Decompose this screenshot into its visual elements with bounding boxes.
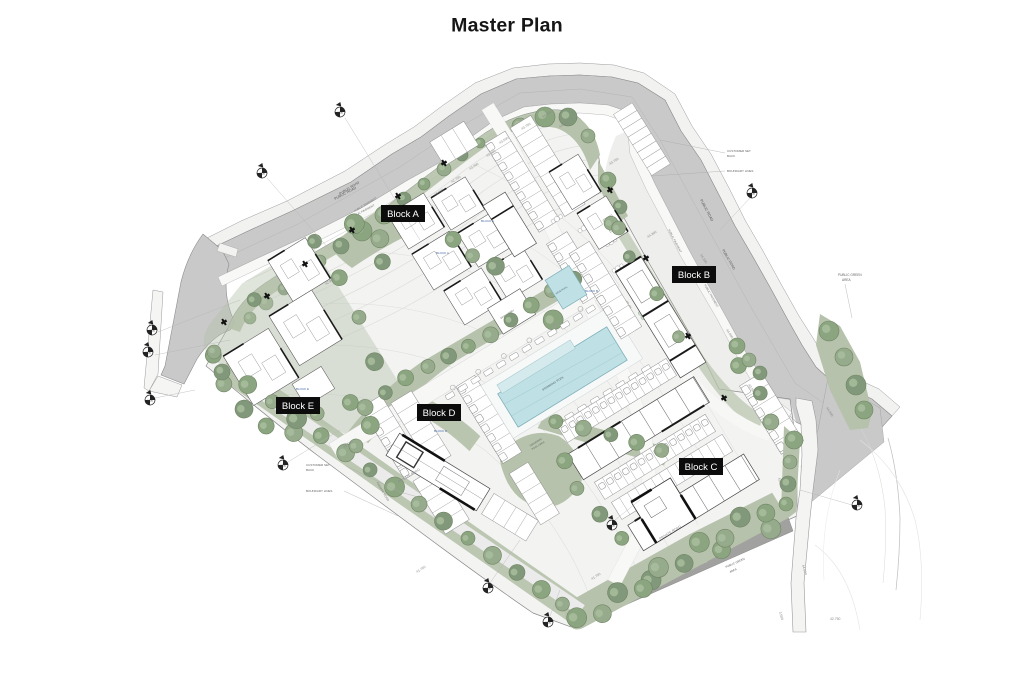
svg-text:A000: A000 bbox=[149, 330, 155, 333]
svg-text:PUBLIC GREEN: PUBLIC GREEN bbox=[838, 273, 862, 277]
svg-text:A000: A000 bbox=[147, 400, 153, 403]
svg-text:BACK: BACK bbox=[727, 154, 735, 158]
svg-text:A000: A000 bbox=[280, 465, 286, 468]
svg-text:A000: A000 bbox=[854, 505, 860, 508]
svg-text:42.750: 42.750 bbox=[830, 617, 840, 621]
svg-text:BLOCK D: BLOCK D bbox=[434, 429, 448, 433]
svg-text:BLOCK A: BLOCK A bbox=[481, 219, 494, 223]
svg-text:A000: A000 bbox=[259, 173, 265, 176]
svg-text:Master Plan: Master Plan bbox=[451, 15, 563, 37]
svg-text:Block C: Block C bbox=[685, 462, 718, 473]
svg-text:A000: A000 bbox=[145, 352, 151, 355]
svg-text:AREA: AREA bbox=[842, 278, 852, 282]
svg-text:A000: A000 bbox=[337, 112, 343, 115]
svg-text:CUSTOMER SET: CUSTOMER SET bbox=[727, 149, 751, 153]
svg-text:Block D: Block D bbox=[423, 408, 456, 419]
svg-text:BOUNDARY LINES: BOUNDARY LINES bbox=[727, 169, 753, 173]
svg-text:BOUNDARY LINES: BOUNDARY LINES bbox=[306, 489, 332, 493]
svg-text:BACK: BACK bbox=[306, 468, 314, 472]
svg-text:Block B: Block B bbox=[678, 270, 710, 281]
svg-text:A000: A000 bbox=[749, 193, 755, 196]
svg-text:Block E: Block E bbox=[282, 401, 314, 412]
svg-text:A000: A000 bbox=[485, 588, 491, 591]
svg-text:BLOCK B: BLOCK B bbox=[585, 289, 598, 293]
svg-text:CUSTOMER SET: CUSTOMER SET bbox=[306, 463, 330, 467]
svg-text:A000: A000 bbox=[545, 622, 551, 625]
svg-text:BLOCK A: BLOCK A bbox=[436, 251, 449, 255]
svg-text:BLOCK E: BLOCK E bbox=[296, 387, 309, 391]
svg-text:A000: A000 bbox=[609, 525, 615, 528]
svg-text:Block A: Block A bbox=[387, 209, 419, 220]
